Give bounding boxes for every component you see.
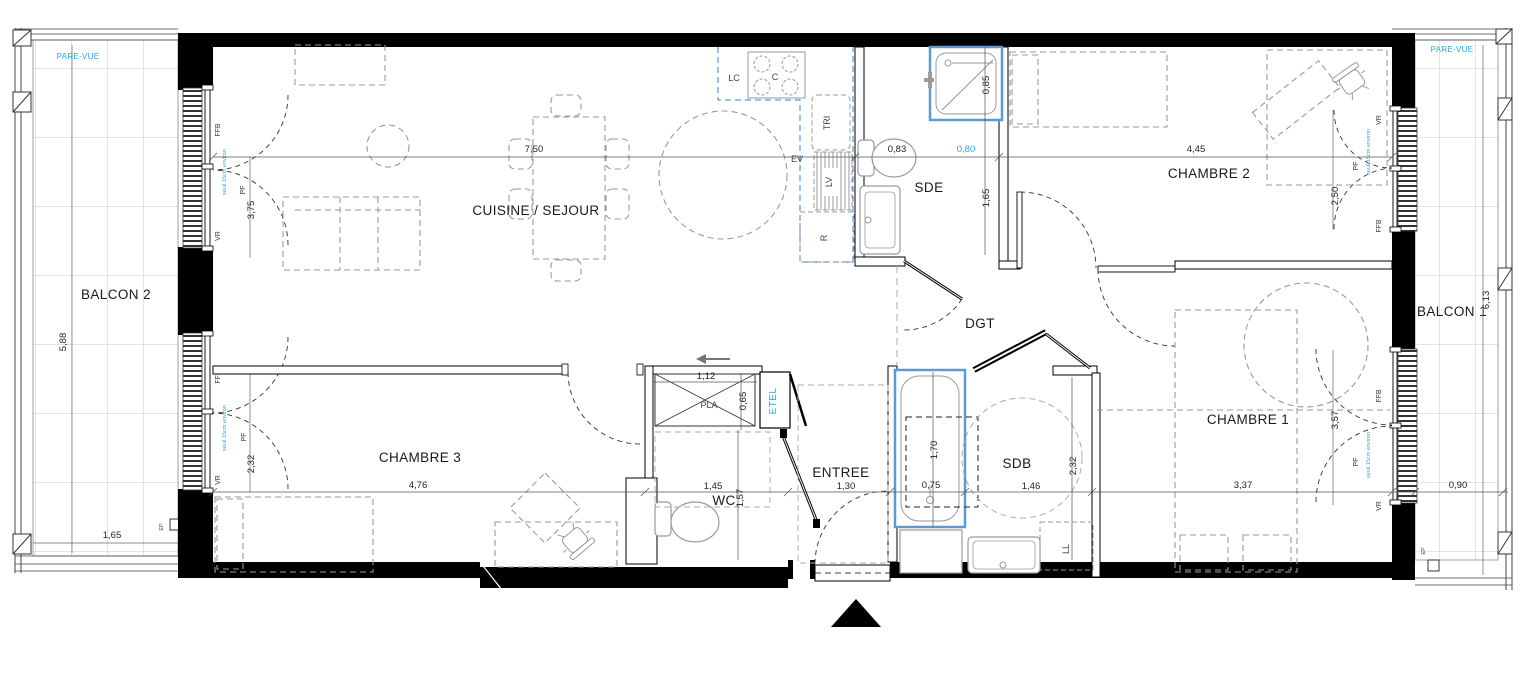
window-label-vr: VR (1376, 501, 1383, 511)
chair (606, 189, 629, 219)
balcony-2: PARE-VUE BALCON 2 5,88 1,65 EP (13, 28, 190, 573)
basin-sde (860, 186, 900, 254)
turning-circle (659, 111, 787, 239)
desk-chambre2 (1252, 61, 1339, 140)
dining-table (533, 117, 605, 259)
pillow (217, 499, 243, 569)
chair (551, 260, 581, 281)
furniture (215, 45, 1390, 572)
room-label-sdb: SDB (1003, 456, 1032, 471)
room-label-chambre1: CHAMBRE 1 (1207, 412, 1289, 427)
window-label-pf: PF (240, 186, 247, 195)
window-label-seuil: seuil 15cm environ (222, 149, 228, 195)
dim-balcon2-width: 1,65 (103, 530, 122, 541)
ep-label-right: EP (1421, 547, 1427, 555)
sideboard (295, 45, 385, 85)
bed-chambre1 (1175, 310, 1297, 572)
dim-pla-depth: 0,65 (738, 392, 749, 411)
window-label-ffb: FFB (1376, 219, 1383, 233)
dim-sejour-width: 7,50 (525, 144, 544, 155)
dim-chambre1-window: 3,57 (1330, 411, 1341, 430)
room-label-dgt: DGT (965, 316, 995, 331)
room-label-chambre3: CHAMBRE 3 (379, 450, 461, 465)
entrance-arrow (831, 599, 881, 627)
ep-box-right (1428, 560, 1439, 571)
dim-chambre2-width: 4,45 (1187, 144, 1206, 155)
window-label-pf: PF (241, 433, 248, 442)
office-chair-chambre3 (552, 518, 597, 562)
dim-wc-width: 1,45 (704, 481, 723, 492)
pillow (1012, 55, 1038, 124)
room-label-etel: ETEL (768, 387, 779, 414)
bed-chambre3 (215, 497, 373, 572)
floor-plan: PARE-VUE BALCON 2 5,88 1,65 EP PARE-VUE … (0, 0, 1529, 690)
window-label-ffb: FFB (215, 123, 222, 137)
closet-etel: ETEL (760, 372, 806, 428)
dim-sde-left: 0,83 (888, 144, 907, 155)
window-label-pf: PF (1353, 458, 1360, 467)
railing-post (13, 30, 31, 554)
dim-shower-width: 0,85 (981, 76, 992, 95)
dim-chambre1-width: 3,37 (1234, 480, 1253, 491)
equip-label-ev: EV (791, 154, 803, 164)
window-label-vr: VR (215, 231, 222, 241)
pare-vue-label-right: PARE-VUE (1431, 45, 1474, 54)
window-label-seuil: seuil 15cm environ (1366, 129, 1372, 175)
dim-entree-width: 1,30 (837, 481, 856, 492)
chair (551, 95, 581, 116)
room-label-entree: ENTREE (812, 465, 869, 480)
room-label-chambre2: CHAMBRE 2 (1168, 166, 1250, 181)
room-label-cuisine-sejour: CUISINE / SEJOUR (472, 203, 599, 218)
sofa (283, 197, 420, 270)
sdb-fixtures: LL (895, 370, 1093, 573)
dim-sdb-depth: 2,32 (1068, 457, 1079, 476)
turning-circle (1244, 283, 1368, 407)
dim-balcon2-depth: 5,88 (58, 333, 69, 352)
dim-sejour-window: 3,75 (246, 201, 257, 220)
equip-label-r: R (819, 234, 829, 241)
window-chambre2: VR seuil 15cm environ FFB PF 2,50 (1330, 106, 1417, 233)
window-label-seuil: seuil 15cm environ (1366, 432, 1372, 478)
dim-balcon1-width: 0,90 (1449, 480, 1468, 491)
dim-chambre2-depth: 2,50 (1330, 187, 1341, 206)
equip-label-tri: TRI (822, 116, 832, 131)
room-label-wc: WC (712, 493, 735, 508)
dim-sdb-width: 1,46 (1022, 481, 1041, 492)
dim-chambre3-window: 2,32 (246, 455, 257, 474)
window-label-pf: PF (1353, 162, 1360, 171)
equip-label-lv: LV (824, 177, 834, 187)
room-label-balcon1: BALCON 1 (1417, 304, 1487, 319)
basin-sdb (968, 537, 1040, 573)
dim-pla-width: 1,12 (697, 371, 716, 382)
ep-label-left: EP (159, 523, 165, 531)
window-sejour: FFB seuil 15cm environ VR PF 3,75 (183, 85, 288, 258)
interior-walls (213, 47, 1392, 577)
chair (606, 139, 629, 169)
cabinet-sdb (900, 530, 962, 573)
equip-label-c: C (772, 72, 779, 82)
flow-arrow (696, 354, 730, 364)
dim-bath-length: 1,70 (929, 441, 940, 460)
window-label-vr: VR (1376, 115, 1383, 125)
room-label-pla: PLA (700, 400, 717, 410)
dim-bath-width: 0,75 (922, 480, 941, 491)
dim-sde-depth: 1,65 (981, 189, 992, 208)
room-label-sde: SDE (915, 180, 944, 195)
window-label-vr: VR (215, 475, 222, 485)
equip-label-ll: LL (1061, 544, 1071, 554)
dim-sde-right: 0,80 (957, 144, 976, 155)
bed-chambre2 (1010, 52, 1167, 127)
pare-vue-label-left: PARE-VUE (57, 52, 100, 61)
window-label-seuil: seuil 15cm environ (222, 405, 228, 451)
window-chambre1: FFB seuil 15cm environ VR PF 3,57 (1316, 347, 1417, 511)
desk-chambre3 (495, 522, 617, 567)
railing-post (1496, 29, 1512, 554)
room-label-balcon2: BALCON 2 (81, 287, 151, 302)
equip-label-lc: LC (728, 73, 740, 83)
kitchen-block: LC C TRI LV R (718, 47, 854, 262)
dim-chambre3-width: 4,76 (409, 480, 428, 491)
window-label-ffb: FFB (1376, 389, 1383, 403)
office-chair-chambre2 (1330, 61, 1374, 104)
side-table (367, 125, 409, 167)
dim-balcon1-length: 6,13 (1481, 291, 1492, 310)
dim-wc-depth: 1,57 (735, 489, 746, 508)
window-chambre3: FFB seuil 15cm environ VR PF 2,32 (183, 331, 288, 493)
